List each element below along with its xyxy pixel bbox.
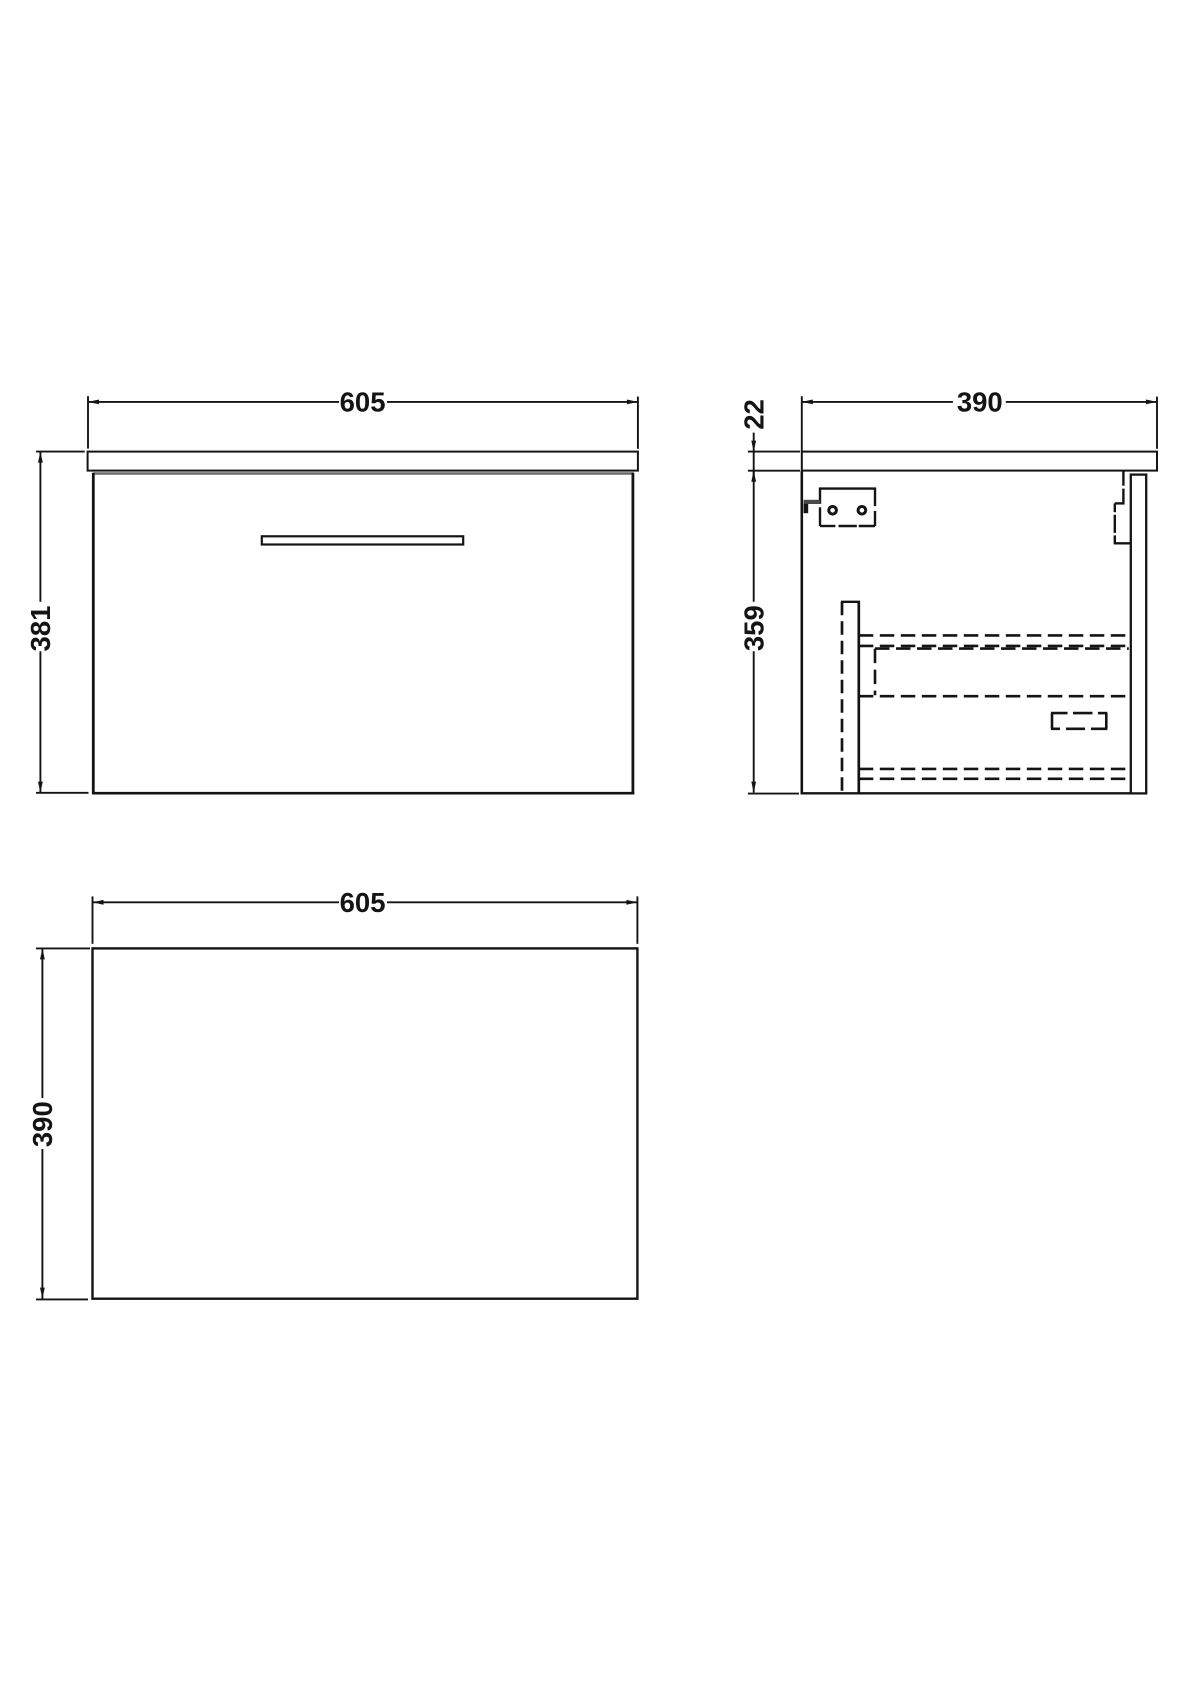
svg-text:605: 605: [340, 887, 386, 918]
svg-text:22: 22: [738, 399, 769, 430]
svg-text:359: 359: [738, 605, 769, 651]
svg-text:381: 381: [25, 606, 56, 652]
svg-text:390: 390: [27, 1101, 58, 1147]
svg-text:390: 390: [957, 387, 1003, 418]
svg-text:605: 605: [340, 387, 386, 418]
